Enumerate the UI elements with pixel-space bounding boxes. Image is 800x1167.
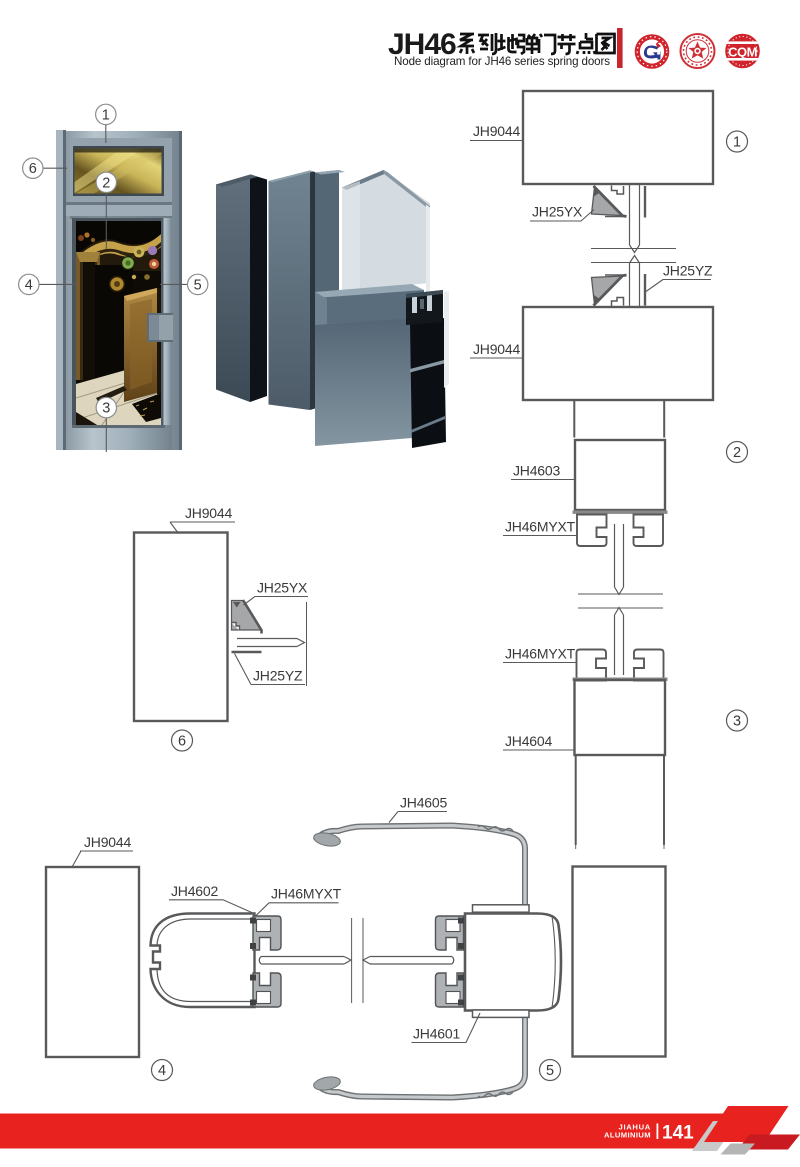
svg-text:JH4604: JH4604 bbox=[505, 733, 552, 749]
svg-text:JH25YZ: JH25YZ bbox=[253, 668, 303, 684]
svg-text:5: 5 bbox=[194, 277, 202, 293]
svg-text:2: 2 bbox=[102, 175, 110, 191]
svg-text:JH25YX: JH25YX bbox=[532, 204, 583, 220]
svg-text:1: 1 bbox=[733, 135, 741, 151]
svg-text:JH25YX: JH25YX bbox=[257, 580, 308, 596]
svg-text:JH4601: JH4601 bbox=[413, 1026, 460, 1042]
svg-text:3: 3 bbox=[733, 714, 741, 730]
svg-text:4: 4 bbox=[158, 1063, 166, 1079]
svg-text:CQM: CQM bbox=[728, 44, 757, 59]
svg-text:JH46MYXT: JH46MYXT bbox=[505, 519, 576, 535]
svg-text:141: 141 bbox=[662, 1123, 694, 1144]
svg-text:JH9044: JH9044 bbox=[473, 123, 520, 139]
svg-text:1: 1 bbox=[102, 107, 110, 123]
svg-text:JH4605: JH4605 bbox=[400, 795, 447, 811]
svg-text:JH9044: JH9044 bbox=[185, 505, 232, 521]
svg-text:JH4603: JH4603 bbox=[513, 463, 560, 479]
svg-text:6: 6 bbox=[29, 161, 37, 177]
svg-text:2: 2 bbox=[733, 445, 741, 461]
svg-text:JH25YZ: JH25YZ bbox=[663, 263, 713, 279]
svg-text:6: 6 bbox=[178, 734, 186, 750]
svg-text:4: 4 bbox=[25, 277, 33, 293]
svg-text:ALUMINIUM: ALUMINIUM bbox=[604, 1131, 651, 1140]
svg-text:JH46MYXT: JH46MYXT bbox=[271, 886, 342, 902]
svg-text:3: 3 bbox=[102, 401, 110, 417]
svg-text:JH9044: JH9044 bbox=[84, 834, 131, 850]
svg-text:JH4602: JH4602 bbox=[171, 883, 218, 899]
svg-text:JH46MYXT: JH46MYXT bbox=[505, 646, 576, 662]
svg-text:5: 5 bbox=[546, 1063, 554, 1079]
svg-text:Node diagram for JH46 series s: Node diagram for JH46 series spring door… bbox=[394, 55, 610, 68]
svg-text:JH9044: JH9044 bbox=[473, 341, 520, 357]
